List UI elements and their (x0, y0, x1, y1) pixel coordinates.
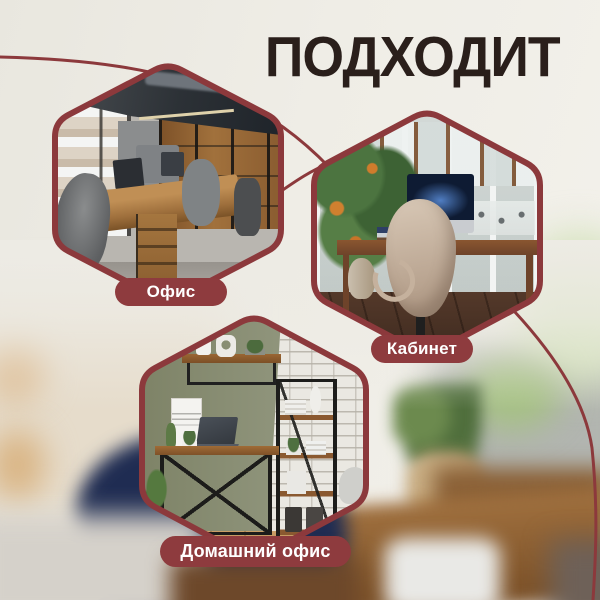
shelf-rack (276, 379, 336, 538)
office-monitor (161, 152, 184, 176)
shelf-mini-plant (245, 340, 265, 356)
floor-vase (348, 258, 375, 300)
page-title: ПОДХОДИТ (265, 24, 560, 90)
office-photo (55, 63, 281, 303)
home-office-hexagon-card (142, 315, 366, 560)
rack-dark-box (285, 507, 303, 532)
rack-papers (306, 441, 326, 455)
rack-white-box (287, 471, 306, 494)
desk-top (155, 446, 278, 455)
rack-plant (286, 438, 302, 455)
cabinet-label: Кабинет (387, 339, 457, 359)
home-office-label-pill: Домашний офис (160, 536, 351, 567)
white-decor-ring (216, 335, 236, 357)
office-monitor (112, 158, 144, 190)
wall-shelf-bracket (187, 363, 277, 385)
desk-x-frame (160, 455, 272, 536)
rack-dark-box (306, 507, 324, 532)
desk-leg (526, 255, 533, 329)
office-chair (234, 178, 261, 236)
rack-white-vase (310, 386, 322, 413)
infographic-canvas: ПОДХОДИТ (0, 0, 600, 600)
office-label-pill: Офис (115, 278, 227, 306)
desk-plant (182, 431, 197, 447)
office-label: Офис (147, 282, 196, 302)
rack-books (285, 400, 306, 414)
office-chair (182, 159, 220, 226)
office-hexagon-card (55, 63, 281, 303)
cactus-plant (166, 423, 176, 448)
white-decor (196, 338, 212, 355)
cabinet-label-pill: Кабинет (371, 335, 473, 363)
home-office-label: Домашний офис (180, 541, 330, 562)
laptop-screen (196, 417, 238, 448)
gray-chair (339, 467, 366, 504)
balcony-rail (468, 201, 536, 235)
home-office-photo (142, 315, 366, 560)
corner-plant (142, 469, 171, 525)
